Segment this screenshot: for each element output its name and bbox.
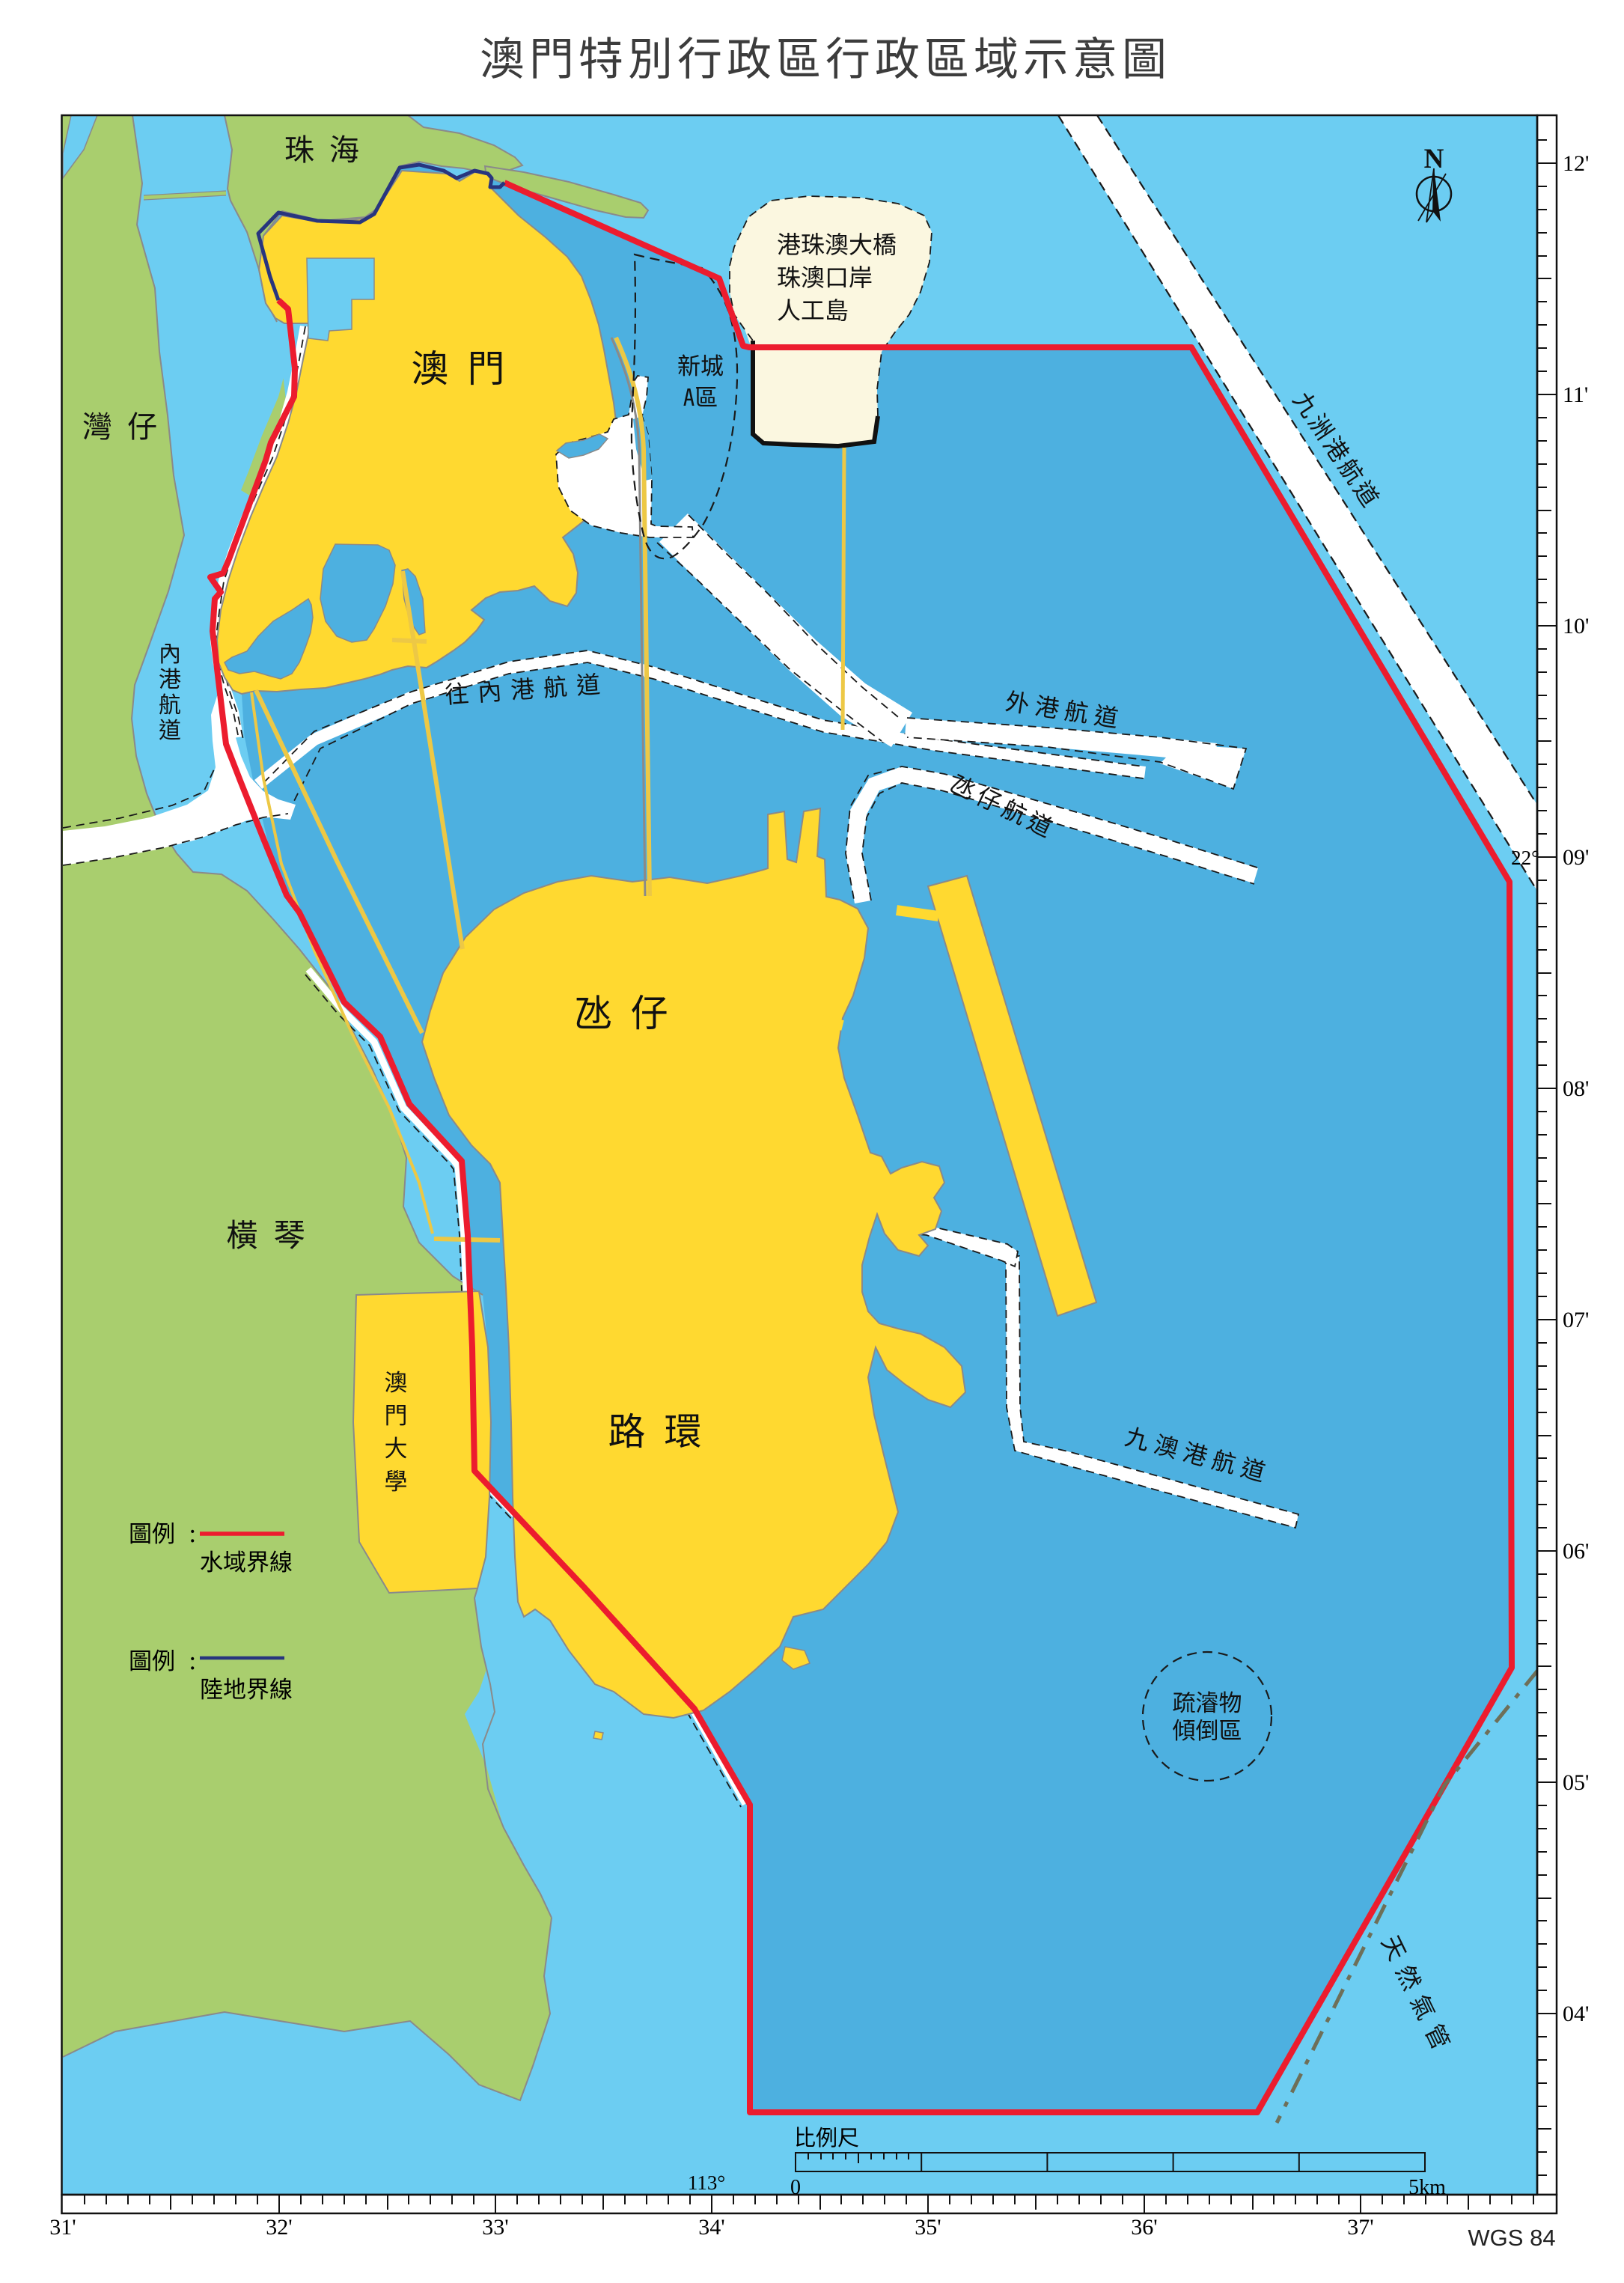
svg-text:05': 05': [1563, 1770, 1589, 1795]
svg-text:32': 32': [266, 2215, 292, 2240]
svg-text:22°: 22°: [1511, 847, 1539, 869]
svg-text:WGS 84: WGS 84: [1468, 2225, 1555, 2251]
svg-text:人工島: 人工島: [777, 292, 849, 326]
svg-text:113°: 113°: [688, 2171, 725, 2194]
svg-text:08': 08': [1563, 1076, 1589, 1101]
svg-text:35': 35': [915, 2215, 941, 2240]
svg-text:水域界線: 水域界線: [200, 1543, 293, 1577]
svg-text:07': 07': [1563, 1308, 1589, 1332]
svg-text:澳: 澳: [385, 1364, 408, 1397]
svg-text:比例尺: 比例尺: [794, 2121, 859, 2152]
svg-text:珠澳口岸: 珠澳口岸: [777, 259, 873, 293]
svg-text:11': 11': [1563, 382, 1588, 407]
svg-text:10': 10': [1563, 614, 1589, 638]
svg-text:12': 12': [1563, 151, 1589, 176]
svg-text:港珠澳大橋: 港珠澳大橋: [777, 226, 897, 260]
svg-text:5km: 5km: [1408, 2176, 1446, 2199]
svg-text:36': 36': [1131, 2215, 1157, 2240]
svg-text:路 環: 路 環: [608, 1402, 702, 1456]
svg-text:門: 門: [385, 1397, 408, 1430]
svg-text:06': 06': [1563, 1539, 1589, 1564]
svg-text:澳門特別行政區行政區域示意圖: 澳門特別行政區行政區域示意圖: [480, 23, 1171, 88]
svg-text:大: 大: [385, 1430, 408, 1463]
svg-text:04': 04': [1563, 2002, 1589, 2026]
svg-text:09': 09': [1563, 845, 1589, 870]
svg-text:學: 學: [385, 1463, 408, 1496]
svg-text:圖例 :: 圖例 :: [129, 1642, 198, 1676]
svg-text:新城: 新城: [677, 347, 724, 381]
svg-text:灣 仔: 灣 仔: [82, 403, 157, 446]
svg-text:氹 仔: 氹 仔: [575, 984, 668, 1037]
svg-text:0: 0: [790, 2176, 801, 2199]
svg-text:澳 門: 澳 門: [412, 339, 505, 393]
svg-text:31': 31': [49, 2215, 76, 2240]
svg-text:道: 道: [159, 712, 181, 745]
svg-text:珠 海: 珠 海: [284, 126, 359, 169]
svg-text:陸地界線: 陸地界線: [200, 1671, 293, 1704]
svg-text:圖例 :: 圖例 :: [129, 1515, 198, 1549]
svg-text:33': 33': [482, 2215, 508, 2240]
svg-text:37': 37': [1347, 2215, 1373, 2240]
svg-text:傾倒區: 傾倒區: [1173, 1712, 1242, 1746]
svg-text:34': 34': [698, 2215, 724, 2240]
svg-text:A區: A區: [683, 379, 718, 412]
svg-text:橫 琴: 橫 琴: [226, 1210, 305, 1256]
